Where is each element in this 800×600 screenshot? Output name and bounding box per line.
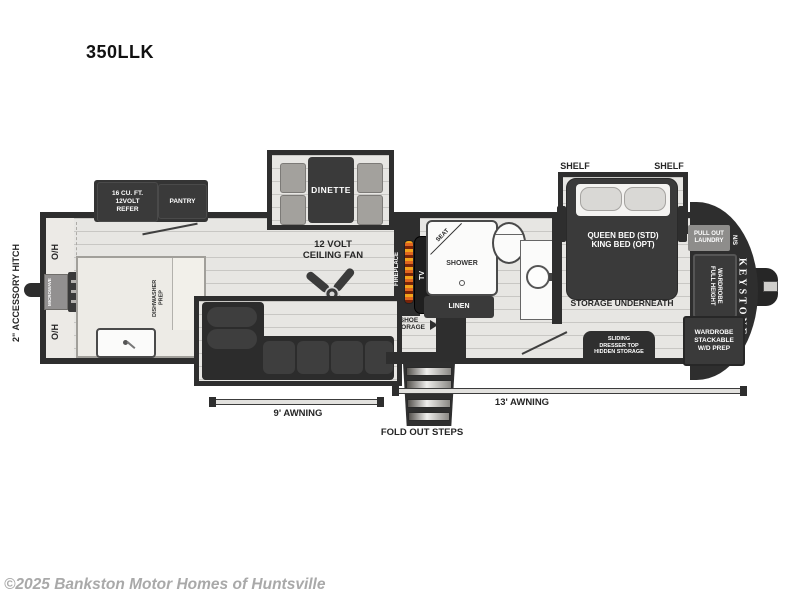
storage-underneath-label: STORAGE UNDERNEATH bbox=[556, 299, 688, 309]
floorplan-canvas: 350LLK O/H O/H MICROWAVE 2" ACCESSORY HI… bbox=[0, 0, 800, 600]
awning-9-cap bbox=[377, 397, 384, 407]
sliding-dresser-label: SLIDING DRESSER TOP HIDDEN STORAGE bbox=[594, 336, 644, 357]
shower-label: SHOWER bbox=[432, 260, 492, 268]
night-stand-label: N/S bbox=[730, 226, 741, 254]
refrigerator-box: 16 CU. FT. 12VOLT REFER bbox=[97, 182, 158, 222]
step bbox=[406, 367, 452, 376]
microwave-box: MICROWAVE bbox=[44, 274, 68, 310]
ceiling-fan-label: 12 VOLT CEILING FAN bbox=[294, 240, 372, 262]
pantry-box: PANTRY bbox=[158, 184, 207, 219]
king-pin-slot bbox=[763, 281, 778, 292]
awning-13-label: 13' AWNING bbox=[478, 398, 566, 409]
vanity bbox=[520, 240, 554, 320]
sofa-cushion bbox=[263, 341, 295, 374]
overhead-cabinet-top-label: O/H bbox=[50, 228, 70, 276]
bed-side-nub-right bbox=[678, 206, 687, 242]
awning-13-bar bbox=[394, 388, 746, 394]
fold-out-steps-label: FOLD OUT STEPS bbox=[378, 428, 466, 439]
dinette-bench-left bbox=[280, 195, 306, 225]
linen-label: LINEN bbox=[449, 303, 470, 311]
awning-9-bar bbox=[211, 399, 383, 405]
vanity-sink bbox=[526, 265, 550, 289]
watermark: ©2025 Bankston Motor Homes of Huntsville bbox=[4, 576, 544, 594]
kitchen-sink bbox=[96, 328, 156, 358]
hitch-knob bbox=[24, 283, 42, 297]
pantry-label: PANTRY bbox=[170, 198, 196, 206]
pull-out-laundry-box: PULL OUT LAUNDRY bbox=[688, 225, 730, 251]
pillow-right bbox=[624, 187, 666, 211]
awning-13-cap bbox=[392, 386, 399, 396]
awning-9-label: 9' AWNING bbox=[254, 409, 342, 420]
dishwasher-prep-label: DISHWASHER PREP bbox=[152, 260, 172, 336]
toilet-tank-line bbox=[494, 234, 524, 235]
refrigerator-label: 16 CU. FT. 12VOLT REFER bbox=[112, 190, 143, 213]
dinette-bench-right bbox=[357, 163, 383, 193]
bed-base: QUEEN BED (STD) KING BED (OPT) bbox=[566, 178, 678, 300]
sofa-cushion bbox=[331, 341, 363, 374]
fireplace-label: FIREPLACE bbox=[394, 232, 404, 306]
pillow-left bbox=[580, 187, 622, 211]
sofa-cushion bbox=[207, 307, 257, 327]
full-height-wardrobe-box: FULL HEIGHT WARDROBE bbox=[693, 254, 737, 318]
shower bbox=[426, 220, 498, 296]
step bbox=[407, 399, 451, 408]
accessory-hitch-label: 2" ACCESSORY HITCH bbox=[11, 226, 24, 360]
shelf-label-right: SHELF bbox=[645, 161, 693, 171]
pull-out-laundry-label: PULL OUT LAUNDRY bbox=[694, 231, 724, 245]
page-title: 350LLK bbox=[86, 42, 206, 63]
full-height-wardrobe-label: FULL HEIGHT WARDROBE bbox=[708, 266, 722, 306]
dinette-table: DINETTE bbox=[308, 157, 354, 223]
awning-13-cap bbox=[740, 386, 747, 396]
dinette-label: DINETTE bbox=[311, 185, 351, 195]
sofa-cushion bbox=[297, 341, 329, 374]
wardrobe-stackable-label: WARDROBE STACKABLE W/D PREP bbox=[694, 329, 734, 352]
microwave-label: MICROWAVE bbox=[47, 276, 65, 308]
dinette-bench-right bbox=[357, 195, 383, 225]
shelf-label-left: SHELF bbox=[551, 161, 599, 171]
wardrobe-stackable-box: WARDROBE STACKABLE W/D PREP bbox=[683, 316, 745, 366]
sliding-dresser-box: SLIDING DRESSER TOP HIDDEN STORAGE bbox=[583, 331, 655, 361]
dinette-bench-left bbox=[280, 163, 306, 193]
fireplace-flame-icon bbox=[404, 240, 414, 304]
step bbox=[408, 412, 450, 421]
dinette-slide: DINETTE bbox=[267, 150, 394, 230]
shower-drain bbox=[459, 280, 465, 286]
sofa-cushion bbox=[207, 329, 257, 349]
awning-9-cap bbox=[209, 397, 216, 407]
linen-cabinet: LINEN bbox=[424, 296, 494, 318]
overhead-cabinet-bottom-label: O/H bbox=[50, 308, 70, 356]
sink-faucet-handle bbox=[127, 341, 136, 349]
bed-side-nub-left bbox=[557, 206, 566, 242]
bed-label: QUEEN BED (STD) KING BED (OPT) bbox=[569, 231, 677, 249]
